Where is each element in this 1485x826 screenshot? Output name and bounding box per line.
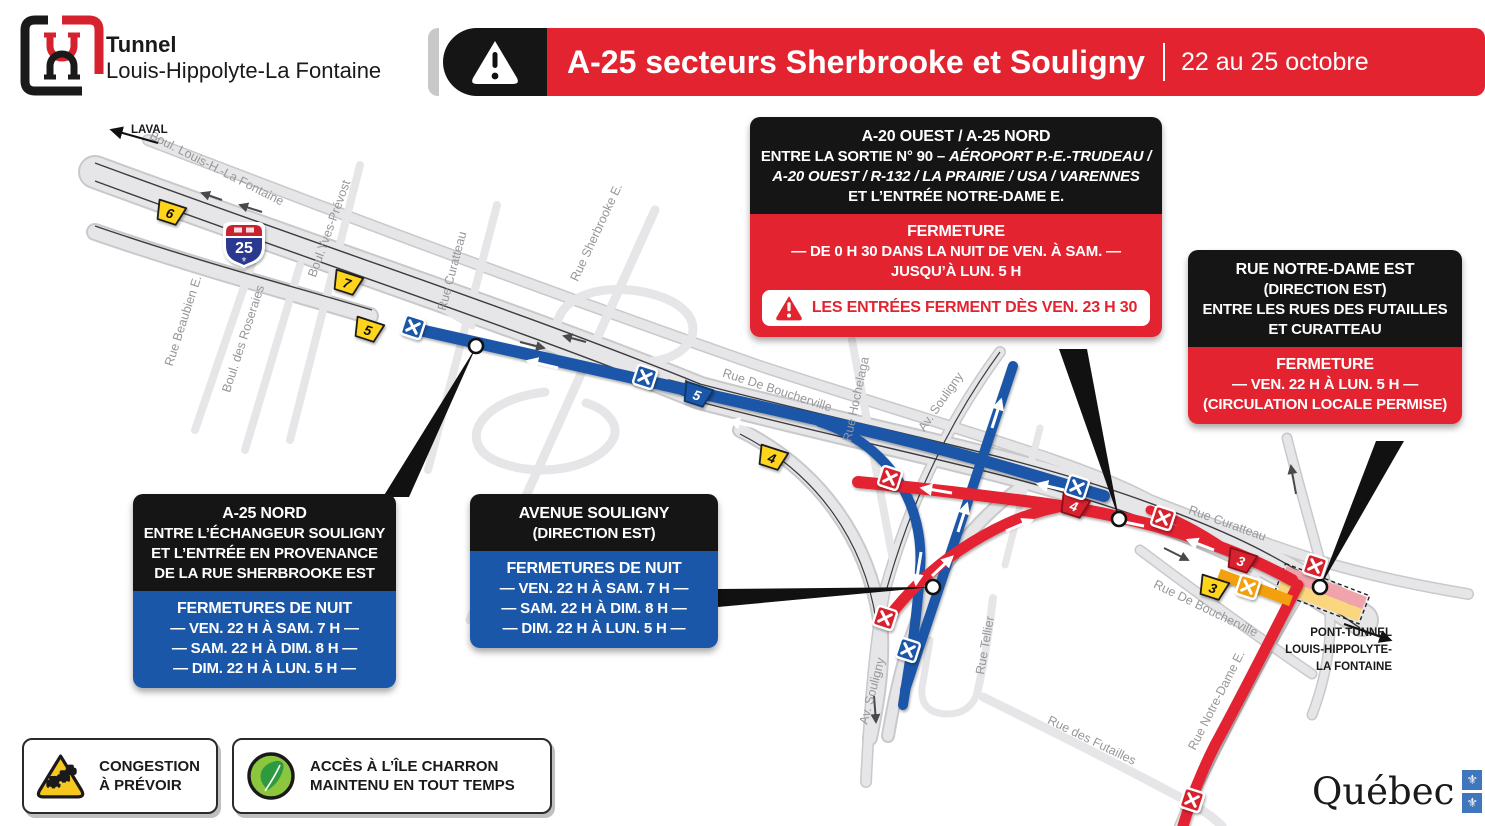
callout-a25n-header: A-25 NORD ENTRE L’ÉCHANGEUR SOULIGNY ET … xyxy=(133,494,396,591)
callout-notre-dame: RUE NOTRE-DAME EST (DIRECTION EST) ENTRE… xyxy=(1188,250,1462,424)
banner-title: A-25 secteurs Sherbrooke et Souligny xyxy=(567,44,1145,81)
callout-a20-ouest-a25-nord: A-20 OUEST / A-25 NORD ENTRE LA SORTIE N… xyxy=(750,117,1162,337)
alert-text: LES ENTRÉES FERMENT DÈS VEN. 23 H 30 xyxy=(812,299,1137,317)
callout-a25n-closure: FERMETURES DE NUIT — VEN. 22 H À SAM. 7 … xyxy=(133,591,396,688)
svg-text:LAVAL: LAVAL xyxy=(131,124,168,136)
callout-souligny-closure: FERMETURES DE NUIT — VEN. 22 H À SAM. 7 … xyxy=(470,551,718,648)
callout-a25-nord: A-25 NORD ENTRE L’ÉCHANGEUR SOULIGNY ET … xyxy=(133,494,396,688)
quebec-text: Québec xyxy=(1312,770,1454,813)
callout-nd-closure: FERMETURE — VEN. 22 H À LUN. 5 H — (CIRC… xyxy=(1188,347,1462,424)
leaf-icon xyxy=(244,749,298,803)
closed-x-marker xyxy=(632,364,657,389)
banner-warning xyxy=(443,28,547,96)
callout-souligny-header: AVENUE SOULIGNY (DIRECTION EST) xyxy=(470,494,718,551)
road-label: Rue Beaubien E. xyxy=(162,274,205,368)
svg-text:⚜: ⚜ xyxy=(241,256,247,264)
closed-x-marker xyxy=(1302,553,1327,578)
a25-shield-icon: 25 ⚜ xyxy=(223,222,265,268)
callout-nd-header: RUE NOTRE-DAME EST (DIRECTION EST) ENTRE… xyxy=(1188,250,1462,347)
svg-text:LOUIS-HIPPOLYTE-: LOUIS-HIPPOLYTE- xyxy=(1285,644,1392,656)
page: Boul. Louis-H.-La FontaineRue Beaubien E… xyxy=(0,0,1485,826)
banner-arc xyxy=(428,28,439,96)
congestion-icon xyxy=(34,750,87,802)
callout-souligny: AVENUE SOULIGNY (DIRECTION EST) FERMETUR… xyxy=(470,494,718,648)
road-label: Rue Tellier xyxy=(973,615,997,675)
callout-a20-title: A-20 OUEST / A-25 NORD xyxy=(756,126,1156,147)
road-label: Rue Sherbrooke E. xyxy=(568,181,626,283)
site-title: Tunnel Louis-Hippolyte-La Fontaine xyxy=(106,32,381,84)
road-label: Rue des Futailles xyxy=(1045,713,1138,768)
legend-ile-charron: ACCÈS À L’ÎLE CHARRON MAINTENU EN TOUT T… xyxy=(232,738,552,814)
warning-icon xyxy=(469,38,521,86)
tunnel-logo xyxy=(18,14,106,98)
closed-x-marker xyxy=(872,605,897,630)
callout-a20-header: A-20 OUEST / A-25 NORD ENTRE LA SORTIE N… xyxy=(750,117,1162,214)
banner-strip: A-25 secteurs Sherbrooke et Souligny 22 … xyxy=(547,28,1485,96)
closed-x-marker xyxy=(877,465,902,490)
legend-congestion: CONGESTION À PRÉVOIR xyxy=(22,738,218,814)
banner-dates: 22 au 25 octobre xyxy=(1181,48,1369,77)
brand-line2: Louis-Hippolyte-La Fontaine xyxy=(106,58,381,84)
quebec-wordmark: Québec ⚜⚜⚜⚜ xyxy=(1312,770,1485,813)
legend-congestion-label: CONGESTION À PRÉVOIR xyxy=(99,757,200,795)
closed-x-marker xyxy=(1235,574,1260,599)
quebec-flag-icon: ⚜⚜⚜⚜ xyxy=(1462,770,1485,813)
entry-closure-alert: LES ENTRÉES FERMENT DÈS VEN. 23 H 30 xyxy=(762,290,1150,326)
callout-a20-closure: FERMETURE — DE 0 H 30 DANS LA NUIT DE VE… xyxy=(750,214,1162,337)
svg-text:PONT-TUNNEL: PONT-TUNNEL xyxy=(1310,627,1392,639)
svg-text:LA FONTAINE: LA FONTAINE xyxy=(1316,661,1392,673)
closed-x-marker xyxy=(895,637,920,662)
closed-x-marker xyxy=(1064,474,1089,499)
alert-triangle-icon xyxy=(775,295,803,321)
closed-x-marker xyxy=(1179,787,1204,812)
brand-line1: Tunnel xyxy=(106,32,381,58)
exit-tab: 5 xyxy=(352,317,385,344)
closed-x-marker xyxy=(1150,505,1175,530)
closed-x-marker xyxy=(400,314,425,339)
legend-charron-label: ACCÈS À L’ÎLE CHARRON MAINTENU EN TOUT T… xyxy=(310,757,515,795)
svg-text:25: 25 xyxy=(235,240,253,257)
banner-separator xyxy=(1163,43,1165,81)
